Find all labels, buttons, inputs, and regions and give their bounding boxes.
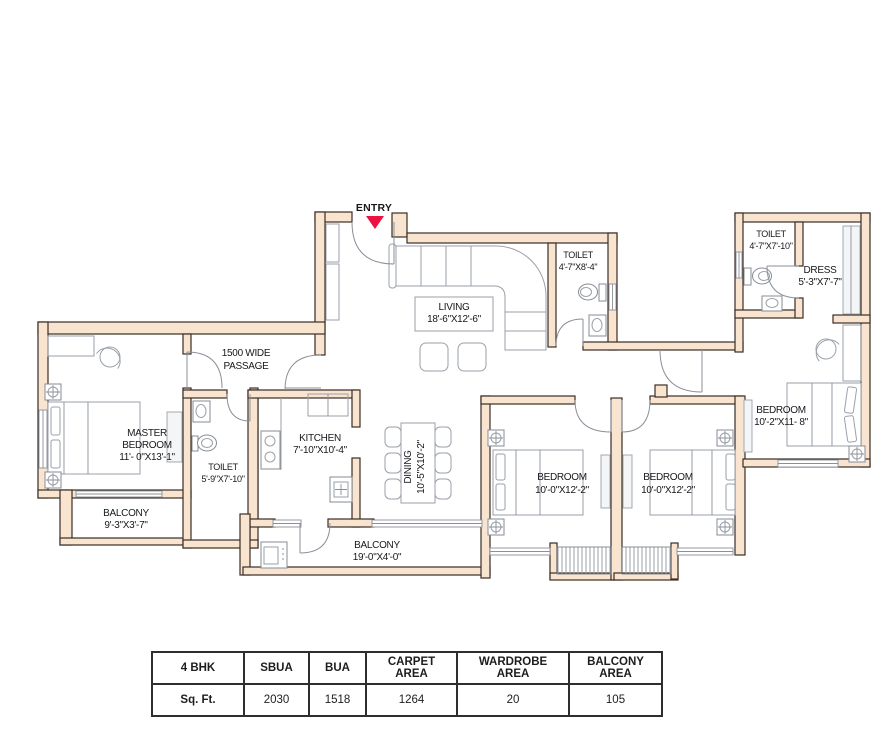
table-cell-wardrobe-value: 20 [457, 684, 569, 716]
room-label-bedroom-mid-left: BEDROOM [537, 472, 587, 483]
window [76, 491, 162, 497]
room-label-toilet-living: TOILET [563, 250, 593, 260]
shaft [326, 224, 339, 262]
dining-chair [385, 453, 401, 473]
room-dims-balcony-master: 9'-3"X3'-7" [104, 520, 148, 531]
dining-chair [435, 427, 451, 447]
door-swing [285, 355, 321, 390]
pillow [726, 484, 735, 510]
table-cell-wardrobe: WARDROBE AREA [457, 652, 569, 684]
window [39, 410, 47, 468]
entry-arrow-icon [366, 216, 384, 229]
nightstand [45, 472, 61, 488]
room-dims-toilet-living: 4'-7"X8'-4" [559, 262, 598, 272]
floor-plan-canvas: ENTRY LIVING 18'-6"X12'-6" TOILET 4'-7"X… [0, 0, 893, 747]
toilet-wc [579, 284, 598, 300]
wall-segment [183, 334, 191, 354]
room-label-dress: DRESS [804, 265, 838, 276]
wall-segment [352, 458, 360, 527]
wall-segment [795, 298, 803, 318]
room-dims-bedroom-mid-right: 10'-0"X12'-2" [641, 485, 695, 496]
room-label-toilet-wing: TOILET [756, 229, 786, 239]
door-swing [575, 400, 611, 432]
window [677, 548, 733, 555]
table-cell-unit-type: 4 BHK [152, 652, 244, 684]
room-dims-bedroom-mid-left: 10'-0"X12'-2" [535, 485, 589, 496]
wall-segment [861, 213, 870, 467]
nightstand [717, 430, 733, 446]
room-dims-balcony-main: 19'-0"X4'-0" [353, 552, 402, 563]
room-label-bedroom-mid-right: BEDROOM [643, 472, 693, 483]
dresser [48, 336, 94, 356]
wall-segment [481, 396, 575, 404]
dining-chair [385, 479, 401, 499]
table-cell-bua-value: 1518 [309, 684, 366, 716]
room-label-bedroom-wing: BEDROOM [756, 405, 806, 416]
wall-segment [352, 390, 360, 427]
wall-segment [735, 213, 743, 352]
pillow [51, 440, 60, 468]
floor-plan-page: ENTRY LIVING 18'-6"X12'-6" TOILET 4'-7"X… [0, 0, 893, 747]
wall-segment [611, 398, 622, 580]
window [736, 252, 742, 278]
wall-segment [583, 342, 743, 350]
door-swing [227, 394, 250, 421]
table-cell-sbua-value: 2030 [244, 684, 309, 716]
toilet-wc [198, 435, 217, 451]
wall-segment [328, 519, 374, 527]
door-swing [622, 400, 650, 432]
room-label-dining: DINING [403, 450, 414, 484]
room-dims-toilet-wing: 4'-7"X7'-10" [749, 241, 792, 251]
table-cell-row-label: Sq. Ft. [152, 684, 244, 716]
toilet-wc [753, 268, 772, 284]
room-dims-toilet-master: 5'-9"X7'-10" [201, 474, 244, 484]
table-header-row: 4 BHK SBUA BUA CARPET AREA WARDROBE AREA… [152, 652, 662, 684]
room-label-toilet-master: TOILET [208, 462, 238, 472]
toilet-tank [744, 268, 751, 285]
room-label-balcony-master: BALCONY [103, 508, 149, 519]
room-dims-master: 11'- 0"X13'-1" [119, 452, 175, 463]
wall-segment [735, 396, 745, 555]
room-label-balcony-main: BALCONY [354, 540, 400, 551]
table-cell-balcony: BALCONY AREA [569, 652, 662, 684]
closet [843, 226, 860, 314]
window [778, 460, 838, 467]
pillow [726, 454, 735, 480]
window [273, 520, 301, 527]
room-label-passage-2: PASSAGE [224, 361, 270, 372]
room-label-kitchen: KITCHEN [299, 433, 341, 444]
dining-chair [435, 479, 451, 499]
room-label-master-1: MASTER [127, 428, 167, 439]
table-value-row: Sq. Ft. 2030 1518 1264 20 105 [152, 684, 662, 716]
wall-segment [795, 222, 803, 266]
desk-chair [810, 333, 843, 365]
room-dims-kitchen: 7'-10"X10'-4" [293, 445, 347, 456]
door-swing [767, 266, 799, 298]
ottoman [420, 343, 448, 371]
door-swing [300, 523, 330, 553]
wall-segment [60, 538, 188, 545]
window [490, 548, 550, 555]
wall-segment [833, 315, 870, 323]
wall-segment [38, 322, 325, 334]
entry-label: ENTRY [356, 202, 392, 214]
wall-segment [548, 243, 556, 347]
room-dims-bedroom-wing: 10'-2"X11- 8" [754, 417, 809, 428]
table-cell-carpet-value: 1264 [366, 684, 457, 716]
pillow [51, 407, 60, 435]
room-dims-dress: 5'-3"X7'-7" [798, 277, 842, 288]
shaft [326, 264, 339, 320]
room-dims-dining: 10'-5"X10'-2" [416, 439, 427, 493]
ac-ledge-hatch [622, 547, 671, 574]
wall-segment [655, 385, 667, 397]
wall-segment [407, 233, 617, 243]
wall-segment [735, 213, 870, 222]
sofa-armrest [389, 244, 396, 288]
hob-stove [261, 431, 280, 469]
door-swing [352, 222, 394, 264]
toilet-tank [599, 284, 606, 301]
ottoman [458, 343, 486, 371]
dining-chair [385, 427, 401, 447]
wardrobe [744, 400, 752, 452]
wardrobe [601, 455, 610, 508]
door-swing [187, 352, 222, 388]
wall-segment [183, 390, 227, 398]
pillow [496, 484, 505, 510]
table-cell-sbua: SBUA [244, 652, 309, 684]
pillow [496, 454, 505, 480]
wall-segment [183, 388, 191, 548]
table-cell-balcony-value: 105 [569, 684, 662, 716]
desk [843, 325, 861, 381]
room-label-master-2: BEDROOM [122, 440, 172, 451]
window [609, 284, 616, 310]
nightstand [45, 384, 61, 400]
wall-segment [60, 490, 72, 545]
room-label-living: LIVING [439, 302, 471, 313]
nightstand [488, 430, 504, 446]
nightstand [717, 519, 733, 535]
wall-segment [481, 396, 490, 578]
room-dims-living: 18'-6"X12'-6" [427, 314, 481, 325]
window [372, 520, 482, 527]
wall-segment [250, 519, 275, 527]
nightstand [849, 446, 865, 462]
desk-chair [94, 341, 127, 372]
nightstand [488, 519, 504, 535]
wall-segment [240, 514, 250, 575]
room-label-passage-1: 1500 WIDE [222, 348, 271, 359]
table-cell-bua: BUA [309, 652, 366, 684]
door-swing [556, 319, 583, 346]
ac-ledge-hatch [557, 547, 611, 574]
area-summary-table: 4 BHK SBUA BUA CARPET AREA WARDROBE AREA… [151, 651, 663, 717]
wardrobe [623, 455, 632, 508]
dining-chair [435, 453, 451, 473]
table-cell-carpet: CARPET AREA [366, 652, 457, 684]
